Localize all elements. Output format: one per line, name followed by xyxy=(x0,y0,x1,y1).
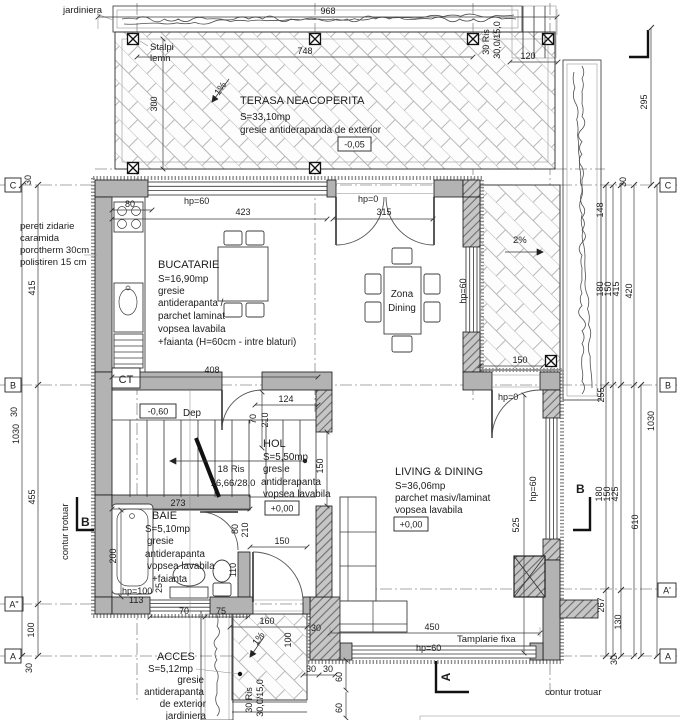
note-stalpi-2: lemn xyxy=(150,53,171,64)
svg-text:-0,05: -0,05 xyxy=(344,140,365,150)
note-wall-1: pereti zidarie xyxy=(20,221,74,232)
level-badge-living: +0,00 xyxy=(394,517,428,531)
svg-text:HOL: HOL xyxy=(263,438,286,450)
window-living-south xyxy=(352,646,536,658)
dim: 525 xyxy=(511,517,521,532)
dim: 455 xyxy=(27,489,37,504)
dim: 80 xyxy=(230,524,240,534)
hp-living-door: hp=0 xyxy=(498,392,518,402)
grid-marker-a2-left: A" xyxy=(9,600,18,610)
dim: 124 xyxy=(278,394,293,404)
dim: 30 xyxy=(9,407,19,417)
window-living-east xyxy=(546,418,557,539)
floor-plan-drawing: B B A C B A" A C B A' A TERASA NEACOPERI… xyxy=(0,0,680,720)
kitchen-counter xyxy=(112,197,145,372)
dim: 60 xyxy=(334,672,344,682)
svg-text:gresie antiderapanda de exteri: gresie antiderapanda de exterior xyxy=(240,125,382,136)
note-ext-stairs-top-1: 30 Ris xyxy=(481,29,491,55)
section-a-bottom-label: A xyxy=(439,672,453,681)
dim: 210 xyxy=(260,412,270,427)
dim: 30 xyxy=(609,655,619,665)
dim: 30 xyxy=(323,664,333,674)
svg-text:antiderapanta: antiderapanta xyxy=(261,477,321,488)
dim: 267 xyxy=(596,597,606,612)
svg-text:Zona: Zona xyxy=(391,289,414,300)
section-b-right-label: B xyxy=(576,482,585,496)
post-icon xyxy=(128,163,139,174)
dim: 30 xyxy=(306,664,316,674)
svg-text:antiderapanta: antiderapanta xyxy=(145,549,205,560)
note-int-stairs-1: 18 Ris xyxy=(218,464,245,475)
dim: 25 xyxy=(154,583,164,593)
note-ext-stairs-bottom-2: 30,0/15,0 xyxy=(255,679,265,717)
svg-text:CT: CT xyxy=(119,374,134,386)
svg-text:S=5,50mp: S=5,50mp xyxy=(263,452,308,463)
svg-text:LIVING & DINING: LIVING & DINING xyxy=(395,466,483,478)
svg-text:Dining: Dining xyxy=(388,303,416,314)
grid-marker-b-right: B xyxy=(665,381,671,391)
note-stalpi-1: Stalpi xyxy=(150,42,174,53)
svg-text:BUCATARIE: BUCATARIE xyxy=(158,259,219,271)
door-entrance xyxy=(253,552,303,602)
note-int-stairs-2: 16,66/28,0 xyxy=(211,478,256,489)
hp-living-window: hp=60 xyxy=(528,476,538,501)
room-label-acces: ACCES S=5,12mp gresie antiderapanta de e… xyxy=(144,651,242,720)
dish-rack xyxy=(114,334,143,368)
svg-text:vopsea lavabila: vopsea lavabila xyxy=(147,561,215,572)
note-wall-4: polistiren 15 cm xyxy=(20,257,87,268)
hp-south-window: hp=60 xyxy=(416,643,441,653)
post-icon xyxy=(546,356,557,367)
section-b-right-mark xyxy=(573,497,590,530)
dim: 1030 xyxy=(11,424,21,444)
hp-dining-window: hp=60 xyxy=(458,278,468,303)
floor-plan-page: B B A C B A" A C B A' A TERASA NEACOPERI… xyxy=(0,0,680,720)
note-ext-stairs-bottom-1: 30 Ris xyxy=(244,687,254,713)
svg-text:BAIE: BAIE xyxy=(152,510,177,522)
dim: 148 xyxy=(595,202,605,217)
post-icon xyxy=(310,163,321,174)
note-contur-left: contur trotuar xyxy=(60,504,71,561)
svg-text:S=5,12mp: S=5,12mp xyxy=(148,664,193,675)
dim: 415 xyxy=(611,281,621,296)
door-french-terrace xyxy=(336,197,434,245)
dim: 1030 xyxy=(646,411,656,431)
dim: 450 xyxy=(424,622,439,632)
svg-text:S=16,90mp: S=16,90mp xyxy=(158,274,209,285)
section-b-left-label: B xyxy=(81,515,90,529)
dim: 968 xyxy=(320,6,335,16)
dim: 80 xyxy=(125,199,135,209)
window-kitchen xyxy=(148,182,327,195)
dim: 30 xyxy=(311,623,321,633)
grid-marker-a-right: A xyxy=(665,652,671,662)
dim: 295 xyxy=(639,94,649,109)
svg-text:gresie: gresie xyxy=(147,536,174,547)
dim: 408 xyxy=(204,365,219,375)
level-badge-terasa: -0,05 xyxy=(338,137,371,151)
svg-text:de exterior: de exterior xyxy=(160,699,207,710)
level-badge-hol: +0,00 xyxy=(265,501,299,515)
note-wall-2: caramida xyxy=(20,233,60,244)
room-label-dep: -0,60 Dep xyxy=(140,404,202,419)
dim: 420 xyxy=(624,283,634,298)
svg-text:parchet laminat: parchet laminat xyxy=(158,311,225,322)
dim: 150 xyxy=(274,536,289,546)
dim: 100 xyxy=(283,632,293,647)
room-label-hol: HOL S=5,50mp gresie antiderapanta vopsea… xyxy=(261,438,331,515)
svg-text:vopsea lavabila: vopsea lavabila xyxy=(158,324,226,335)
svg-text:Dep: Dep xyxy=(183,408,202,419)
room-label-living: LIVING & DINING S=36,06mp parchet masiv/… xyxy=(394,466,491,531)
dim: 30 xyxy=(618,177,628,187)
svg-text:gresie: gresie xyxy=(263,464,290,475)
section-a-top-mark xyxy=(629,30,648,57)
dim: 300 xyxy=(149,96,159,111)
grid-marker-b-left: B xyxy=(10,381,16,391)
svg-text:+faianta (H=60cm - intre blatu: +faianta (H=60cm - intre blaturi) xyxy=(158,337,296,348)
grid-marker-a-left: A xyxy=(10,652,16,662)
dim: 70 xyxy=(179,606,189,616)
svg-text:-0,60: -0,60 xyxy=(148,407,169,417)
post-icon xyxy=(128,34,139,45)
post-icon xyxy=(468,34,479,45)
svg-text:parchet masiv/laminat: parchet masiv/laminat xyxy=(395,493,491,504)
grid-marker-a1-right: A' xyxy=(663,586,671,596)
dim: 160 xyxy=(259,616,274,626)
dim: 255 xyxy=(596,387,606,402)
note-ext-stairs-top-2: 30,0/15,0 xyxy=(492,21,502,59)
fireplace xyxy=(514,556,545,597)
svg-text:S=36,06mp: S=36,06mp xyxy=(395,481,446,492)
dim: 100 xyxy=(26,622,36,637)
dim: 425 xyxy=(610,486,620,501)
svg-text:antiderapanta /: antiderapanta / xyxy=(158,298,224,309)
svg-text:+0,00: +0,00 xyxy=(400,520,423,530)
grid-marker-c-left: C xyxy=(10,181,17,191)
level-badge-dep: -0,60 xyxy=(140,404,176,418)
note-wall-3: porotherm 30cm xyxy=(20,245,89,256)
svg-text:jardiniera: jardiniera xyxy=(165,711,207,720)
dim: 70 xyxy=(248,414,258,424)
svg-text:TERASA NEACOPERITA: TERASA NEACOPERITA xyxy=(240,95,365,107)
dim: 315 xyxy=(376,207,391,217)
dim: 210 xyxy=(240,522,250,537)
svg-text:gresie: gresie xyxy=(177,675,204,686)
svg-text:gresie: gresie xyxy=(158,286,185,297)
dim: 60 xyxy=(334,703,344,713)
svg-text:vopsea lavabila: vopsea lavabila xyxy=(263,489,331,500)
note-contur-bottom: contur trotuar xyxy=(545,687,602,698)
hp-kitchen-window: hp=60 xyxy=(184,196,209,206)
dim: 150 xyxy=(512,355,527,365)
svg-text:ACCES: ACCES xyxy=(157,651,195,663)
kitchen-table xyxy=(218,231,268,317)
svg-text:+0,00: +0,00 xyxy=(271,504,294,514)
dim: 30 xyxy=(24,663,34,673)
dim: 120 xyxy=(520,51,535,61)
dim: 415 xyxy=(27,280,37,295)
ct-marker: CT xyxy=(112,368,140,388)
svg-text:S=5,10mp: S=5,10mp xyxy=(145,524,190,535)
dim: 113 xyxy=(129,595,143,605)
dim: 150 xyxy=(315,458,325,473)
note-jardiniera-top: jardiniera xyxy=(62,5,103,16)
svg-text:antiderapanta: antiderapanta xyxy=(144,687,204,698)
dim: 130 xyxy=(613,614,623,629)
dim: 273 xyxy=(170,498,185,508)
dim: 610 xyxy=(630,514,640,529)
hp-terrace-door: hp=0 xyxy=(358,194,378,204)
post-icon xyxy=(543,34,554,45)
dim: 200 xyxy=(108,548,118,563)
dining-table xyxy=(365,248,440,352)
slope-lateral: 2% xyxy=(513,235,527,246)
dim: 30 xyxy=(23,175,33,185)
dim: 423 xyxy=(235,207,250,217)
dim: 75 xyxy=(216,606,226,616)
dim: 748 xyxy=(297,46,312,56)
note-tamplarie: Tamplarie fixa xyxy=(457,634,516,645)
grid-marker-c-right: C xyxy=(665,181,672,191)
svg-text:S=33,10mp: S=33,10mp xyxy=(240,112,291,123)
kitchen-sink xyxy=(114,283,143,332)
post-icon xyxy=(310,34,321,45)
dim: 110 xyxy=(228,563,238,577)
svg-text:vopsea lavabila: vopsea lavabila xyxy=(395,505,463,516)
terrace-side-paving xyxy=(480,185,560,370)
